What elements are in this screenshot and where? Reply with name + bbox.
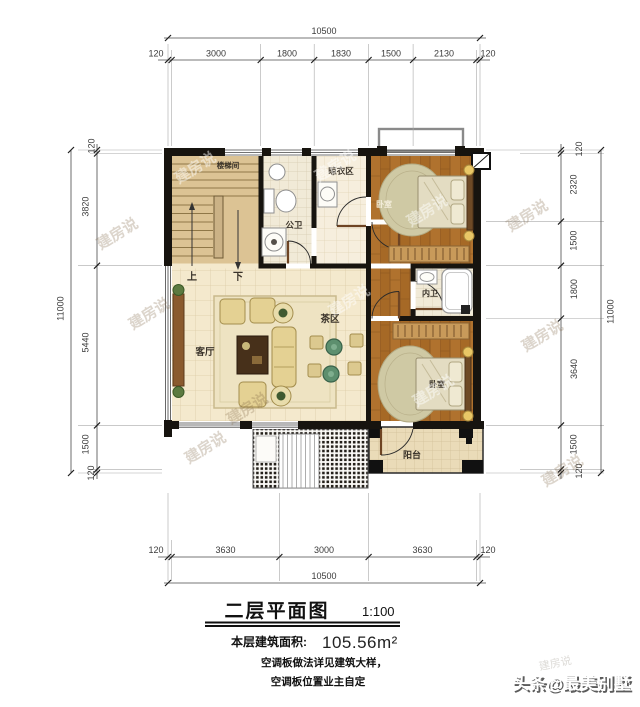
dim-top-total: 10500	[311, 26, 336, 36]
bedroom-bottom-headboard	[465, 356, 471, 412]
dim-right-seg-0: 120	[574, 141, 584, 156]
watermark-text: 建房说	[93, 214, 141, 253]
stair-landing-strip	[172, 264, 259, 269]
tea-table-2-top	[328, 371, 334, 377]
wall-innerbath-west-2	[411, 309, 416, 316]
stair-rail	[214, 196, 223, 258]
toilet-tank	[264, 189, 274, 213]
wall-bottom-4	[413, 421, 484, 429]
dim-top-seg-4: 1500	[381, 49, 401, 59]
living-room-label: 客厅	[194, 346, 215, 358]
wall-bottom-3	[298, 421, 381, 429]
dim-top-seg-6: 120	[480, 49, 495, 59]
stair-down-label: 下	[233, 271, 243, 283]
toilet-bowl	[276, 190, 296, 212]
watermark-text: 建房说	[181, 428, 229, 467]
title-block: 二层平面图 1:100 本层建筑面积: 105.56m² 空调板做法详见建筑大样…	[205, 600, 400, 688]
tv-console	[173, 294, 184, 386]
dim-top-seg-3: 1830	[331, 49, 351, 59]
dim-bottom-labels: 120 3630 3000 3630 120	[148, 545, 495, 555]
dim-left-seg-1: 3820	[80, 197, 90, 217]
wall-right	[473, 148, 481, 429]
watermark-text: 建房说	[538, 451, 586, 490]
ac-platform	[472, 153, 490, 169]
wall-bath-south-1	[259, 264, 287, 269]
title-underline-1	[205, 622, 400, 624]
dim-right-seg-1: 2320	[569, 174, 579, 194]
armchair-2	[250, 298, 275, 323]
balcony-post	[466, 438, 472, 444]
dim-top-labels: 120 3000 1800 1830 1500 2130 120	[148, 49, 495, 59]
wall-wing-upper	[366, 156, 371, 197]
credit-ghost-watermark: 建房说	[538, 653, 573, 674]
dim-bottom-seg-0: 120	[148, 545, 163, 555]
balcony	[369, 427, 483, 473]
credit: 建房说 头条@最美别墅 头条@最美别墅	[512, 653, 633, 695]
public-bath-label: 公卫	[285, 220, 303, 230]
balcony-label: 阳台	[403, 449, 421, 460]
plant-bottom	[173, 387, 184, 398]
armchair-1	[220, 299, 245, 324]
tea-table-1-top	[331, 344, 337, 350]
bedroom-top-pillow-1	[451, 180, 464, 200]
coffee-table	[237, 336, 268, 374]
tea-chair-2	[350, 334, 363, 347]
bedroom-bottom-wardrobe	[393, 323, 469, 339]
wall-top-2	[262, 148, 271, 156]
bay-window	[377, 129, 465, 156]
floor-plan-page: 楼梯间 公卫 晾衣区 卧室 内卫 卧室 客厅 茶区 阳台 上 下 10500 1…	[0, 0, 640, 707]
wall-left-upper	[164, 148, 172, 266]
wall-top-3	[302, 148, 311, 156]
plan-title: 二层平面图	[224, 600, 329, 622]
dim-right-seg-2: 1500	[568, 231, 578, 251]
wall-bath-laundry-lower	[312, 256, 317, 264]
wall-innerbath-north	[411, 264, 473, 269]
side-table-bottom-plant	[277, 392, 286, 401]
dimensions-bottom: 120 3630 3000 3630 120 10500	[148, 493, 495, 586]
dim-left-seg-2: 5440	[81, 332, 91, 352]
wall-bottom-1	[164, 421, 179, 429]
dim-bottom-seg-1: 3630	[215, 545, 235, 555]
inner-bath-label: 内卫	[422, 288, 438, 298]
side-table-top-plant	[279, 309, 288, 318]
window-bath-top	[271, 148, 302, 156]
inner-bath-sink	[420, 273, 434, 282]
wall-innerbath-west-1	[411, 269, 416, 282]
dim-right-seg-4: 3640	[569, 359, 579, 379]
dim-left-labels: 120 3820 5440 1500 120	[80, 138, 96, 480]
dim-left-seg-4: 120	[86, 465, 96, 480]
note-line-2: 空调板位置业主自定	[271, 675, 366, 688]
floor-drain	[461, 305, 470, 314]
washer-center	[271, 239, 277, 245]
wall-innerbath-south	[399, 316, 473, 321]
dim-left-total: 11000	[56, 296, 66, 320]
window-living-bottom-2	[252, 421, 298, 429]
bedroom-bottom-lamp-1	[463, 347, 473, 357]
area-value: 105.56m²	[322, 633, 398, 652]
dim-top-seg-5: 2130	[434, 49, 454, 59]
dim-bottom-seg-3: 3630	[412, 545, 432, 555]
dimensions-right: 120 2320 1500 1800 3640 1500 120 11000	[486, 141, 616, 479]
wall-bath-laundry-upper	[312, 156, 317, 228]
tea-chair-1	[310, 336, 323, 349]
dim-left-seg-0: 120	[87, 138, 97, 153]
dim-bottom-total: 10500	[311, 571, 336, 581]
dim-bottom-seg-4: 120	[480, 545, 495, 555]
coffee-table-decor-1	[242, 342, 250, 350]
dim-top-seg-2: 1800	[277, 49, 297, 59]
area-label: 本层建筑面积:	[231, 634, 307, 649]
porch-roof-hatch	[253, 429, 368, 488]
note-line-1: 空调板做法详见建筑大样，	[261, 656, 387, 669]
bedroom-top-lamp-1	[464, 165, 474, 175]
stair-up-label: 上	[187, 270, 197, 283]
dim-right-seg-5: 1500	[569, 434, 579, 454]
window-stairwell-top	[225, 148, 262, 156]
wall-bath-south-2	[310, 264, 371, 269]
plan-scale: 1:100	[362, 604, 395, 619]
balcony-column-br	[462, 460, 483, 473]
dim-left-seg-3: 1500	[81, 434, 91, 454]
coffee-table-decor-2	[252, 356, 262, 364]
watermark-text: 建房说	[503, 196, 551, 235]
bedroom-top-headboard	[467, 174, 473, 230]
bedroom-bottom-lamp-2	[463, 411, 473, 421]
credit-text: 头条@最美别墅	[512, 673, 631, 693]
dim-top-seg-1: 3000	[206, 49, 226, 59]
dim-right-total: 11000	[606, 299, 616, 323]
floor-plan-drawing: 楼梯间 公卫 晾衣区 卧室 内卫 卧室 客厅 茶区 阳台 上 下 10500 1…	[0, 0, 640, 707]
wall-top-1	[164, 148, 225, 156]
tea-chair-4	[348, 362, 361, 375]
dim-right-seg-3: 1800	[569, 279, 579, 299]
window-living-left	[164, 266, 172, 420]
watermark-text: 建房说	[518, 316, 566, 355]
title-underline-2	[205, 625, 400, 627]
dim-top-seg-0: 120	[148, 49, 163, 59]
wall-wing-main	[366, 226, 371, 421]
tea-chair-3	[308, 364, 321, 377]
dim-bottom-seg-2: 3000	[314, 545, 334, 555]
bedroom-top-lamp-2	[464, 231, 474, 241]
drying-area-fixtures	[318, 182, 337, 207]
balcony-column-bl	[369, 460, 383, 473]
washbasin	[269, 164, 285, 180]
exterior-stair	[279, 434, 319, 488]
hatch-notch	[256, 436, 276, 462]
stairwell-label: 楼梯间	[217, 160, 240, 170]
dim-right-labels: 120 2320 1500 1800 3640 1500 120	[568, 141, 584, 478]
plant-top	[173, 285, 184, 296]
bedroom-top-pillow-2	[451, 204, 464, 224]
bedroom-top-label: 卧室	[376, 199, 392, 209]
sofa-three-seat	[272, 327, 296, 387]
